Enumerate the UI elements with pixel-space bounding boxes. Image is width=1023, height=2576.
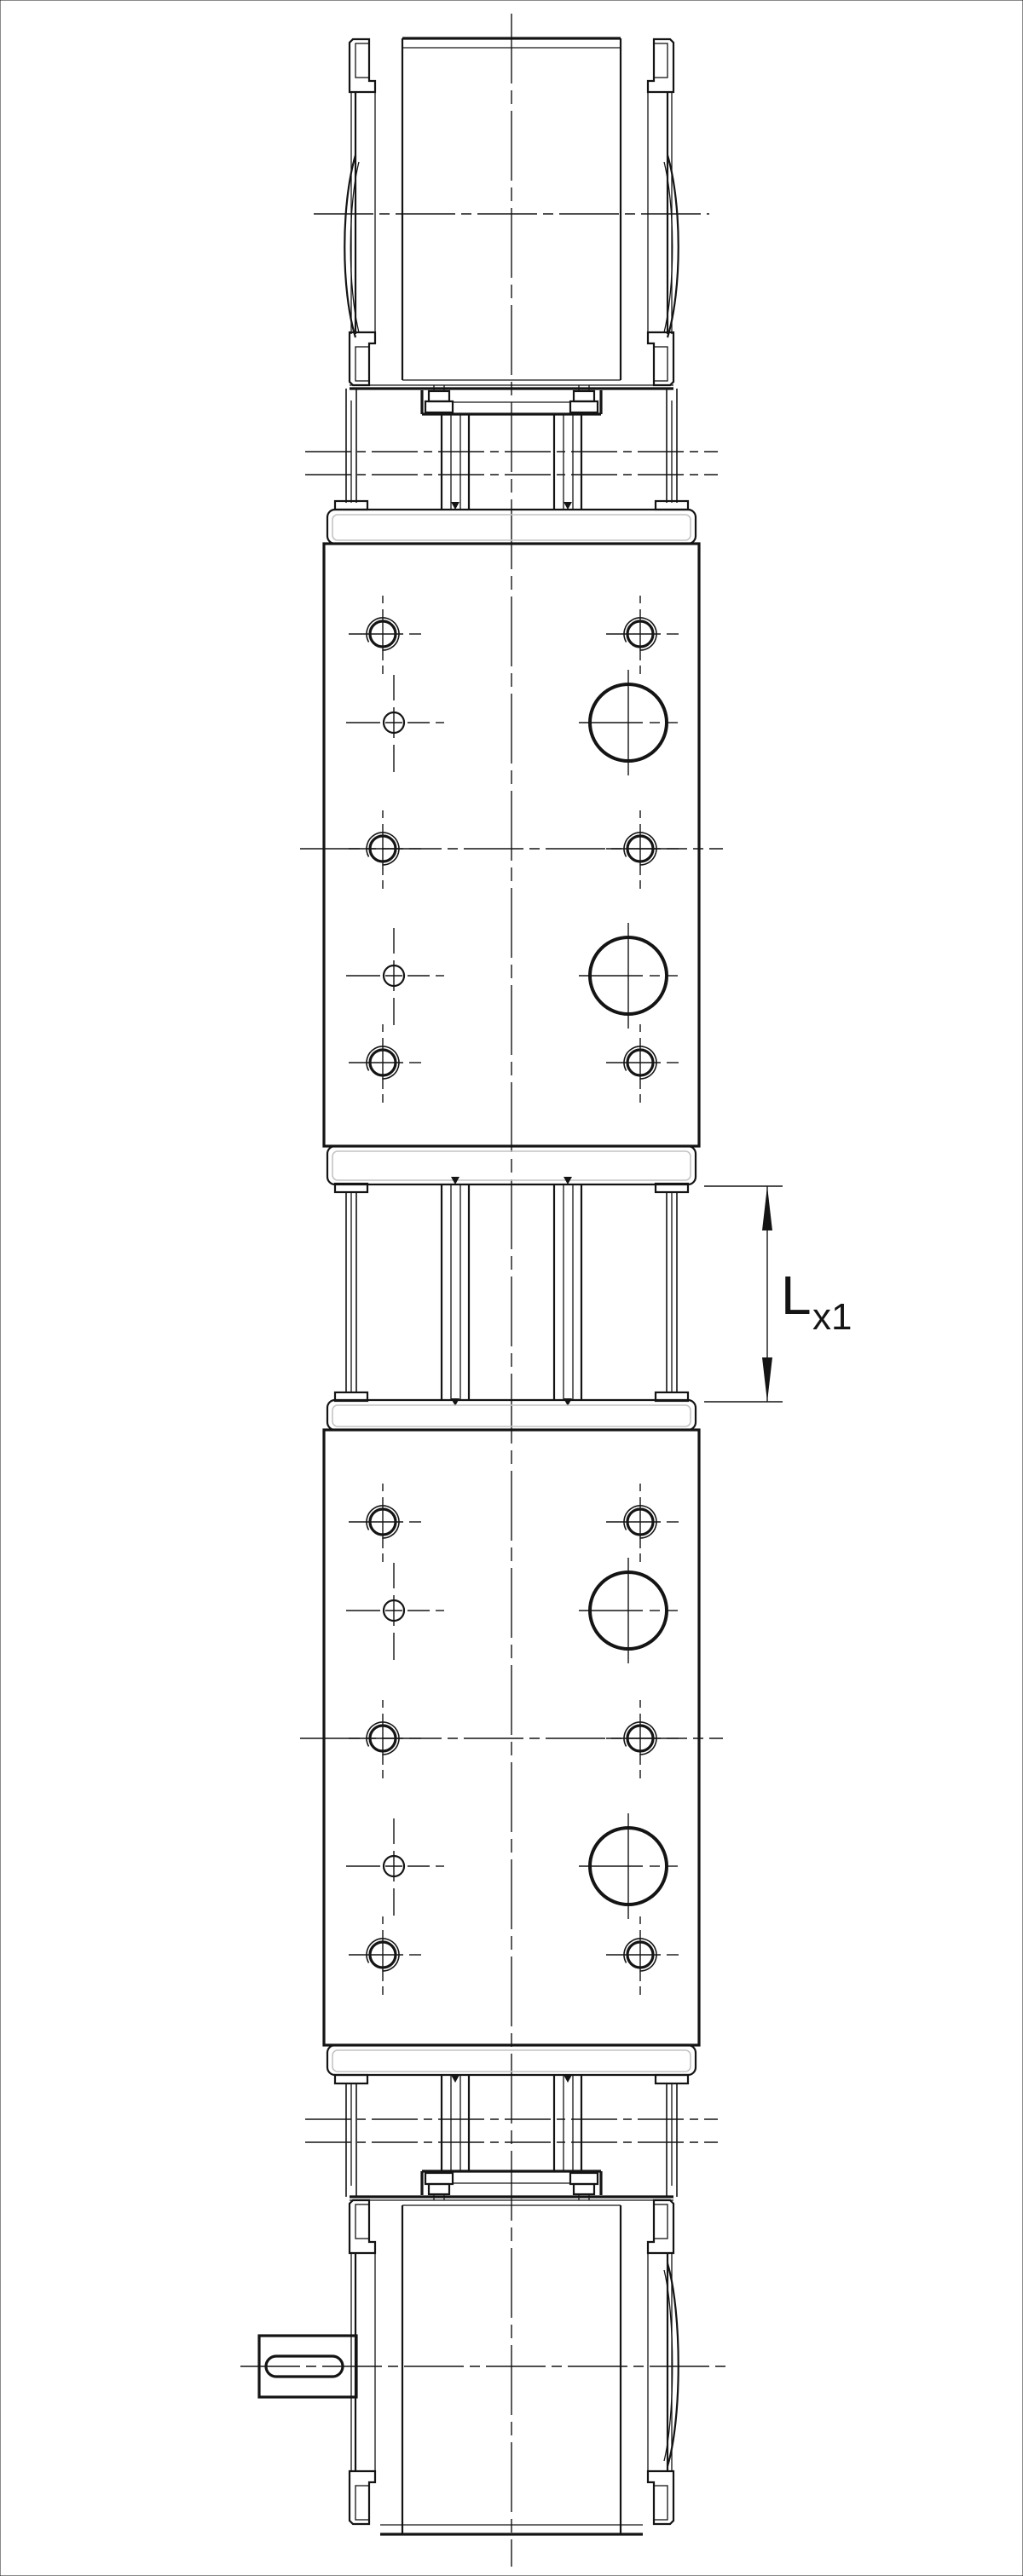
threaded-hole [606,1024,679,1103]
dimension-label: L [781,1265,812,1326]
large-bore [579,1813,678,1919]
threaded-hole [349,1916,421,1995]
motor-tab-bottom-right [648,2471,673,2524]
pilot-hole [346,1818,444,1916]
motor-tab-top-right [648,2200,673,2253]
threaded-hole [606,1916,679,1995]
motor-tab-top-right [648,39,673,92]
motor-tab-top-left [350,39,375,92]
motor-tab-bottom-left [350,332,375,385]
pilot-hole [346,1563,444,1660]
pilot-hole [346,928,444,1025]
drawing-sheet: L x1 [0,0,1023,2576]
threaded-hole [606,1700,679,1778]
dimension-lx1: L x1 [704,1186,852,1402]
threaded-hole [349,1700,421,1778]
threaded-hole [606,596,679,674]
motor-tab-top-left [350,2200,375,2253]
large-bore [579,923,678,1029]
bottom-motor [240,2197,729,2534]
threaded-hole [349,596,421,674]
threaded-hole [606,810,679,889]
pilot-hole [346,675,444,772]
arrowhead-up [762,1186,772,1230]
threaded-hole [606,1484,679,1562]
large-bore [579,670,678,775]
large-bore [579,1558,678,1663]
threaded-hole [349,810,421,889]
dimension-label-subscript: x1 [812,1296,852,1338]
motor-tab-bottom-right [648,332,673,385]
threaded-hole [349,1484,421,1562]
technical-drawing: L x1 [0,0,1023,2576]
threaded-hole [349,1024,421,1103]
arrowhead-down [762,1357,772,1402]
motor-tab-bottom-left [350,2471,375,2524]
